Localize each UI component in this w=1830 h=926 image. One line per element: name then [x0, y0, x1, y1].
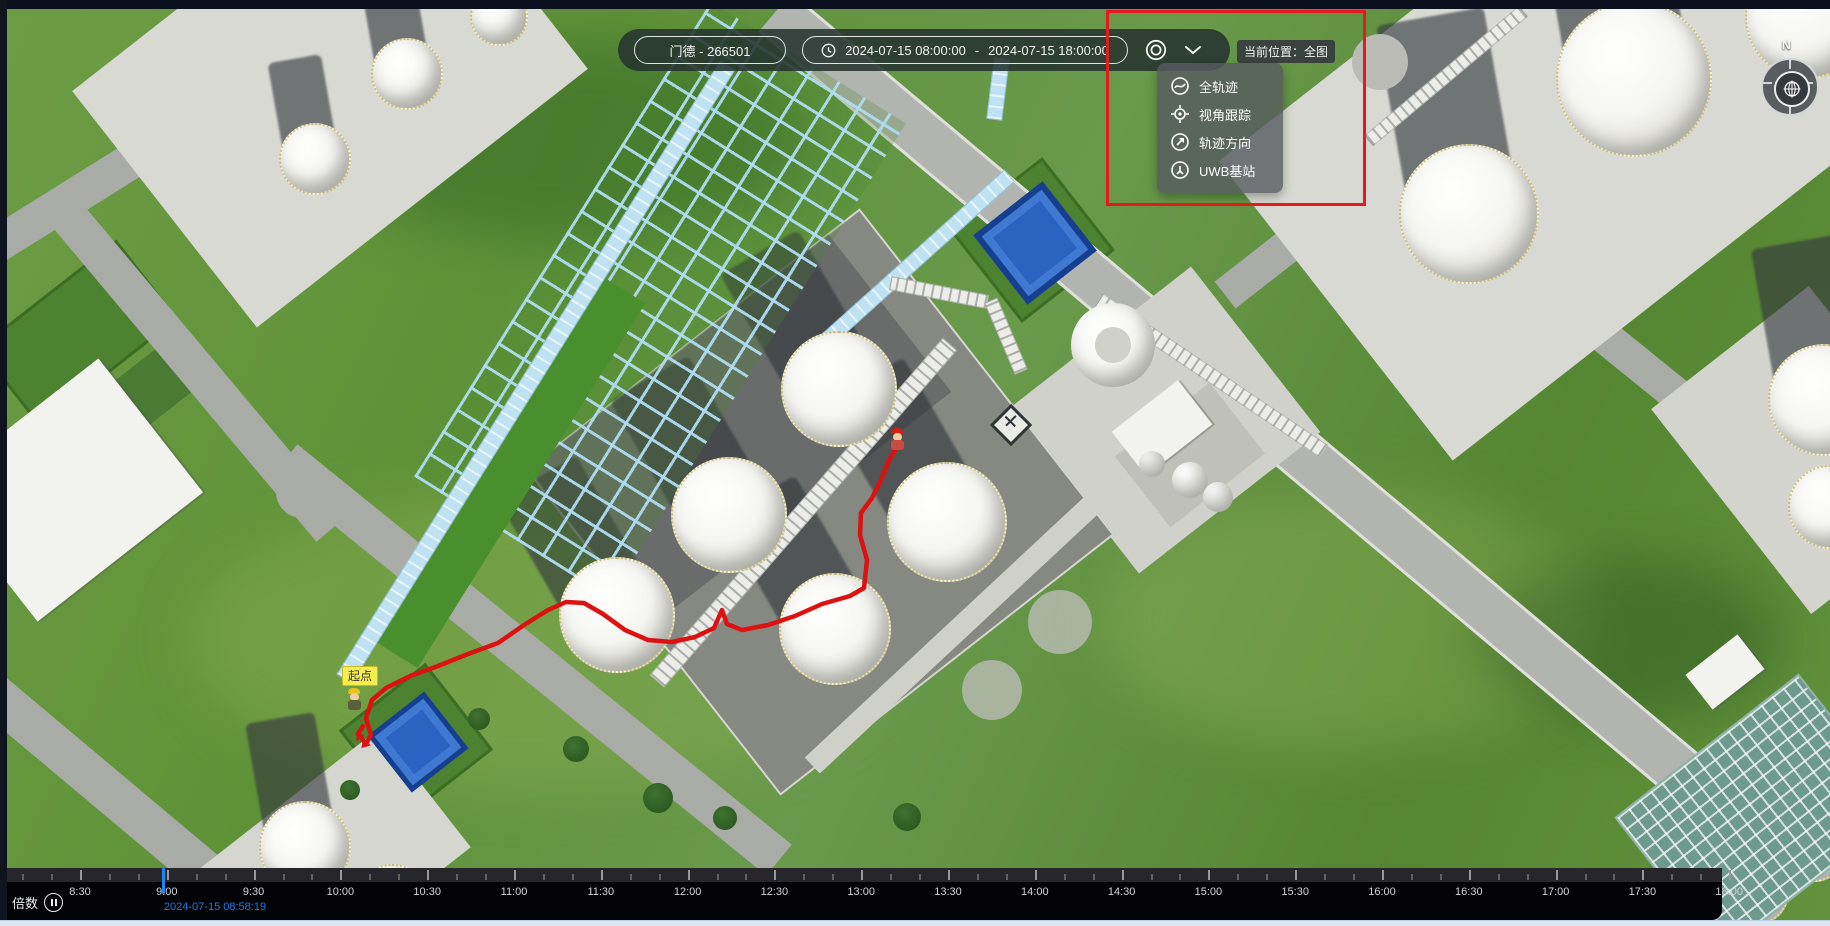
time-range-separator: - [975, 43, 979, 58]
timeline-tick [254, 870, 256, 880]
timeline-tick [167, 870, 169, 880]
start-point-label-text: 起点 [348, 669, 372, 683]
person-select-value: 门德 - 266501 [670, 41, 751, 60]
person-marker-start[interactable] [347, 688, 361, 710]
timeline-tick [1035, 870, 1037, 880]
timeline-tick [948, 870, 950, 880]
timeline-tick [1295, 870, 1297, 880]
timeline-bar: 8:309:009:3010:0010:3011:0011:3012:0012:… [0, 868, 1722, 920]
timeline-minor-tick [803, 874, 805, 880]
timeline-tick-label: 12:00 [668, 886, 708, 898]
timeline-minor-tick [283, 874, 285, 880]
timeline-tick [688, 870, 690, 880]
window-left-edge [0, 0, 7, 926]
timeline-tick-label: 8:30 [60, 886, 100, 898]
timeline-tick-label: 15:00 [1188, 886, 1228, 898]
timeline-minor-tick [1353, 874, 1355, 880]
timeline-tick [427, 870, 429, 880]
timeline-minor-tick [1411, 874, 1413, 880]
timeline-tick-label: 12:30 [754, 886, 794, 898]
timeline-minor-tick [659, 874, 661, 880]
current-time-label: 2024-07-15 08:58:19 [164, 901, 266, 913]
timeline-tick [80, 870, 82, 880]
window-top-edge [0, 0, 1830, 9]
timeline-minor-tick [109, 874, 111, 880]
annotation-highlight-box [1106, 10, 1366, 206]
timeline-minor-tick [1266, 874, 1268, 880]
timeline-tick-label: 10:00 [320, 886, 360, 898]
timeline-minor-tick [717, 874, 719, 880]
timeline-minor-tick [51, 874, 53, 880]
timeline-minor-tick [1440, 874, 1442, 880]
timeline-minor-tick [1151, 874, 1153, 880]
compass-spoke [1763, 82, 1772, 84]
timeline-tick [1642, 870, 1644, 880]
clock-icon [821, 43, 836, 58]
timeline-minor-tick [22, 874, 24, 880]
timeline-minor-tick [543, 874, 545, 880]
timeline-minor-tick [832, 874, 834, 880]
timeline-tick-label: 14:00 [1015, 886, 1055, 898]
timeline-minor-tick [1700, 874, 1702, 880]
timeline-tick-label: 11:00 [494, 886, 534, 898]
timeline-minor-tick [225, 874, 227, 880]
timeline-minor-tick [311, 874, 313, 880]
timeline-tick [601, 870, 603, 880]
compass-spoke [1789, 60, 1791, 69]
timeline-tick-label: 16:30 [1449, 886, 1489, 898]
time-range-picker[interactable]: 2024-07-15 08:00:00 - 2024-07-15 18:00:0… [802, 36, 1128, 64]
timeline-minor-tick [890, 874, 892, 880]
timeline-minor-tick [1527, 874, 1529, 880]
timeline-tick [774, 870, 776, 880]
compass-control[interactable] [1761, 58, 1819, 116]
timeline-minor-tick [456, 874, 458, 880]
timeline-tick-label: 15:30 [1275, 886, 1315, 898]
timeline-tick-label: 11:30 [581, 886, 621, 898]
playback-speed-control: 倍数 [12, 893, 63, 912]
timeline-minor-tick [1093, 874, 1095, 880]
person-select-pill[interactable]: 门德 - 266501 [634, 36, 786, 64]
pause-button[interactable] [44, 893, 63, 912]
timeline-minor-tick [1585, 874, 1587, 880]
timeline-minor-tick [1324, 874, 1326, 880]
timeline-minor-tick [919, 874, 921, 880]
timeline-tick [1469, 870, 1471, 880]
timeline-tick-label: 9:00 [147, 886, 187, 898]
timeline-minor-tick [630, 874, 632, 880]
timeline-tick-label: 13:30 [928, 886, 968, 898]
timeline-tick-label: 17:30 [1622, 886, 1662, 898]
timeline-tick-label: 9:30 [234, 886, 274, 898]
timeline-minor-tick [1179, 874, 1181, 880]
tracking-app-window: 起点 N 门德 - 266501 [0, 0, 1830, 926]
timeline-tick-label: 17:00 [1536, 886, 1576, 898]
time-range-start: 2024-07-15 08:00:00 [845, 43, 966, 58]
start-point-label: 起点 [342, 666, 378, 686]
timeline-minor-tick [1006, 874, 1008, 880]
timeline-tick [514, 870, 516, 880]
timeline-tick-label: 10:30 [407, 886, 447, 898]
timeline-minor-tick [369, 874, 371, 880]
timeline-minor-tick [138, 874, 140, 880]
timeline-minor-tick [1671, 874, 1673, 880]
timeline-minor-tick [1498, 874, 1500, 880]
timeline-minor-tick [196, 874, 198, 880]
time-range-end: 2024-07-15 18:00:00 [988, 43, 1109, 58]
compass-north-label: N [1782, 38, 1791, 52]
timeline-minor-tick [1613, 874, 1615, 880]
speed-label: 倍数 [12, 893, 38, 912]
trajectory-layer [0, 0, 1830, 926]
timeline-minor-tick [1237, 874, 1239, 880]
timeline-tick-label: 14:30 [1102, 886, 1142, 898]
timeline-tick [1729, 870, 1731, 880]
compass-globe-icon[interactable] [1774, 71, 1810, 107]
timeline-minor-tick [572, 874, 574, 880]
timeline-playhead[interactable] [162, 868, 165, 894]
timeline-minor-tick [977, 874, 979, 880]
timeline-minor-tick [1064, 874, 1066, 880]
timeline-tick [1382, 870, 1384, 880]
window-bottom-edge [0, 920, 1830, 926]
timeline-tick [1556, 870, 1558, 880]
person-body [891, 440, 904, 450]
timeline-tick-label: 18:00 [1709, 886, 1749, 898]
person-body [348, 700, 361, 710]
timeline-minor-tick [745, 874, 747, 880]
timeline-tick-label: 13:00 [841, 886, 881, 898]
timeline-tick [1122, 870, 1124, 880]
person-marker-current[interactable] [890, 428, 904, 450]
timeline-minor-tick [398, 874, 400, 880]
timeline-tick-label: 16:00 [1362, 886, 1402, 898]
timeline-tick [861, 870, 863, 880]
timeline-scrubber[interactable] [0, 868, 1722, 882]
timeline-minor-tick [485, 874, 487, 880]
timeline-tick [1208, 870, 1210, 880]
timeline-tick [340, 870, 342, 880]
